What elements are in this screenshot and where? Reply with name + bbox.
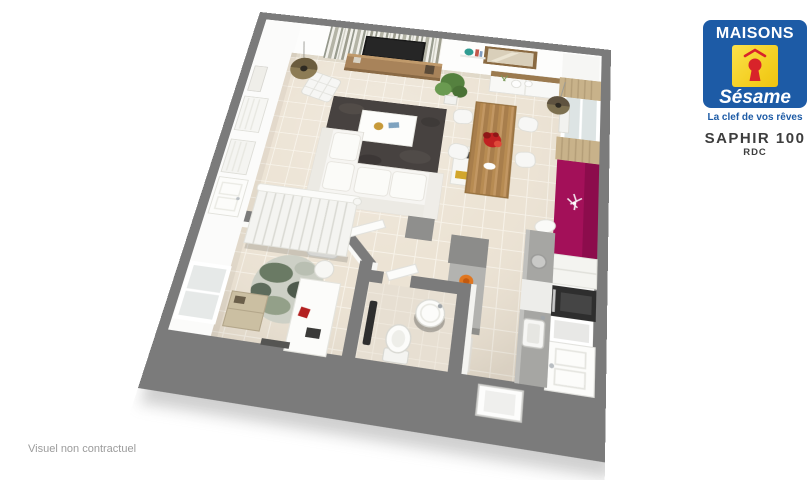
dining-chair bbox=[453, 109, 472, 124]
disclaimer-text: Visuel non contractuel bbox=[28, 443, 136, 455]
floor-plan-3d bbox=[127, 12, 611, 480]
floor-plan-svg bbox=[127, 12, 611, 480]
keyhole-badge bbox=[732, 45, 778, 87]
coffee-table bbox=[356, 110, 417, 146]
brand-sub: Sésame bbox=[703, 88, 807, 107]
magenta-accent-wall bbox=[552, 159, 599, 259]
dining-chair bbox=[515, 152, 536, 167]
brand-tagline: La clef de vos rêves bbox=[698, 112, 811, 123]
kitchen-partition bbox=[448, 234, 489, 268]
keyhole-icon bbox=[735, 48, 775, 84]
bathroom bbox=[355, 282, 457, 372]
page: MAISONS Sésame La clef de vos rêves SAPH… bbox=[0, 0, 811, 480]
bottom-wall-window bbox=[476, 385, 523, 422]
kitchen-wall-cabinets bbox=[550, 254, 597, 290]
brand-logo: MAISONS Sésame bbox=[703, 20, 807, 108]
brand-name: MAISONS bbox=[703, 25, 807, 43]
roof-icon bbox=[745, 50, 765, 56]
kitchen-window bbox=[552, 318, 591, 345]
gray-mat bbox=[405, 216, 435, 242]
front-door bbox=[544, 341, 595, 398]
plan-model-title: SAPHIR 100 bbox=[700, 130, 810, 147]
plan-level: RDC bbox=[700, 147, 810, 158]
